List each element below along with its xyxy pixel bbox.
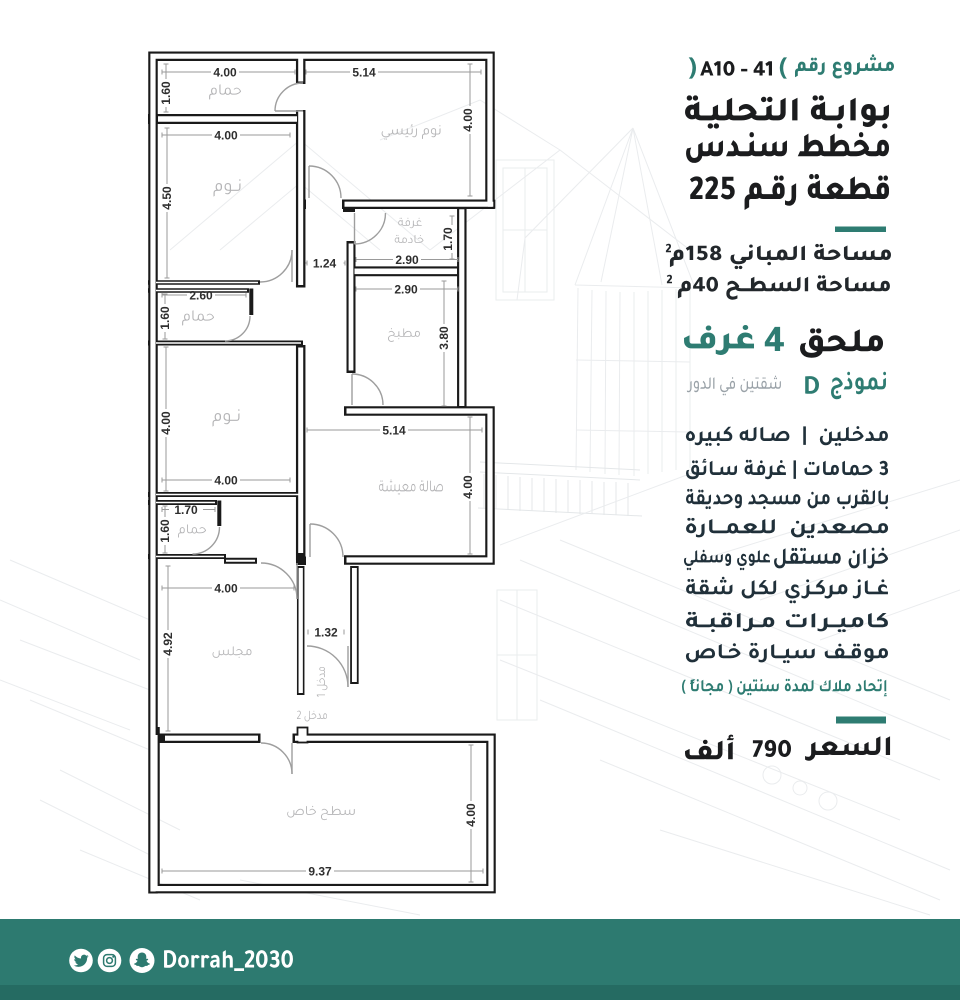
svg-text:4.00: 4.00 — [213, 65, 237, 79]
svg-text:4.00: 4.00 — [464, 803, 478, 827]
svg-text:4.00: 4.00 — [461, 475, 475, 499]
svg-text:5.14: 5.14 — [382, 423, 406, 437]
svg-text:2.90: 2.90 — [395, 253, 419, 267]
svg-text:4.00: 4.00 — [214, 581, 238, 595]
svg-text:4.00: 4.00 — [214, 128, 238, 142]
svg-text:1.32: 1.32 — [314, 625, 338, 639]
svg-text:1.60: 1.60 — [159, 81, 173, 105]
svg-text:2.90: 2.90 — [394, 282, 418, 296]
svg-text:4.00: 4.00 — [214, 473, 238, 487]
svg-text:3.80: 3.80 — [437, 326, 451, 350]
svg-text:1.60: 1.60 — [158, 306, 172, 330]
svg-text:4.92: 4.92 — [161, 632, 175, 656]
svg-text:9.37: 9.37 — [308, 864, 332, 878]
svg-text:1.60: 1.60 — [158, 519, 172, 543]
svg-text:1.70: 1.70 — [174, 503, 198, 517]
svg-text:4.00: 4.00 — [461, 108, 475, 132]
svg-text:4.00: 4.00 — [159, 411, 173, 435]
svg-text:1.70: 1.70 — [441, 227, 455, 251]
svg-text:2.60: 2.60 — [189, 288, 213, 302]
svg-text:5.14: 5.14 — [352, 65, 376, 79]
svg-text:1.24: 1.24 — [313, 256, 337, 270]
svg-text:4.50: 4.50 — [160, 186, 174, 210]
